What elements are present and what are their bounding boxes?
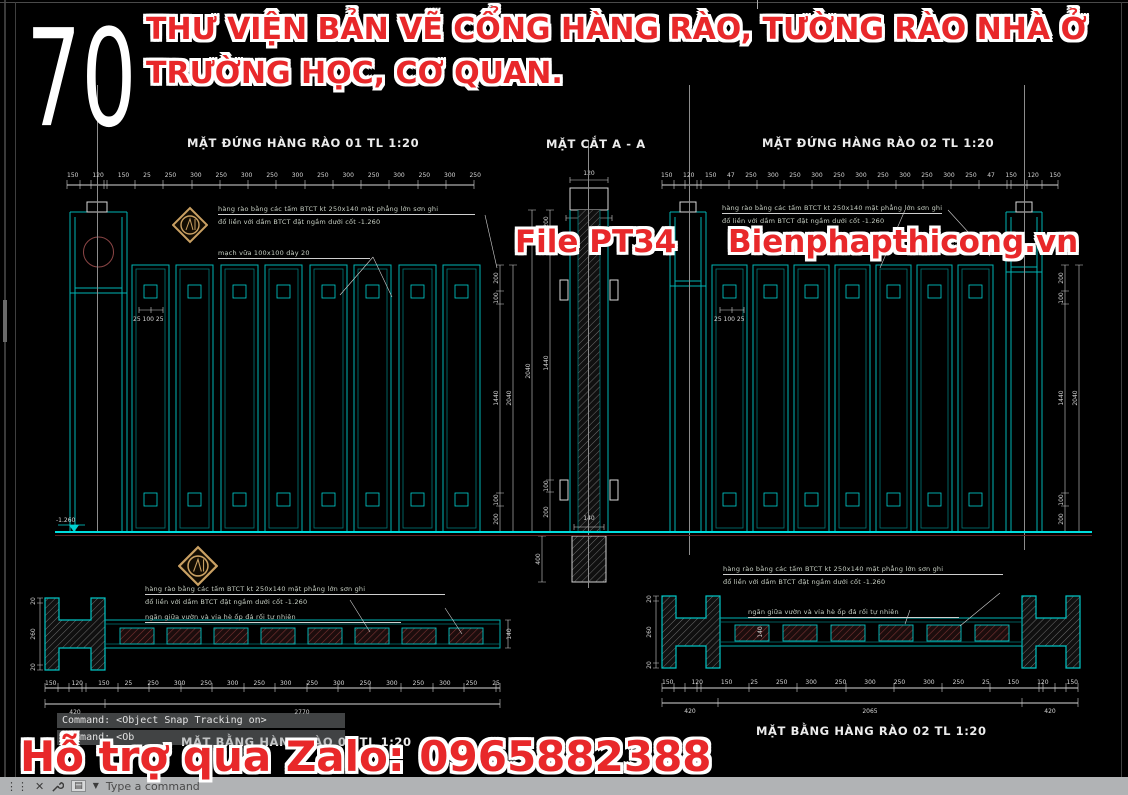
elevation-02-top-dims: 1501201504725030025030025030025030025030… [661, 172, 1061, 179]
drag-handle-icon[interactable]: ⋮⋮ [6, 781, 28, 792]
watermark-file-label: File PT34 [515, 224, 676, 260]
sheet-number: 70 [26, 12, 137, 146]
svg-text:200: 200 [543, 506, 550, 518]
construction-line [1024, 85, 1025, 550]
gate-post [70, 212, 127, 532]
elevation-01-top-dims: 1501201502525030025030025030025030025030… [67, 172, 481, 179]
customize-wrench-icon[interactable] [51, 780, 64, 793]
watermark-website: Bienphapthicong.vn [728, 224, 1078, 260]
plan-02-annotation-1: hàng rào bằng các tấm BTCT kt 250x140 mặ… [723, 565, 1003, 575]
command-input-placeholder[interactable]: Type a command [106, 780, 200, 793]
ground-line-shadow [55, 535, 1092, 536]
elevation-01-annotation-2: đổ liền với dầm BTCT đặt ngầm dưới cốt -… [218, 218, 380, 226]
plan-panels [120, 628, 483, 644]
svg-text:20: 20 [30, 597, 37, 605]
svg-text:200: 200 [1058, 272, 1065, 284]
h-column-left [662, 596, 720, 668]
svg-text:200: 200 [493, 272, 500, 284]
svg-text:1440: 1440 [493, 390, 500, 405]
frame-left [15, 2, 16, 778]
top-tick [757, 0, 758, 9]
fence-panels [132, 265, 480, 532]
svg-text:20: 20 [646, 661, 653, 669]
plan-02-bottom-dims: 1501201502525030025030025030025025150120… [662, 679, 1078, 686]
svg-text:200: 200 [1058, 513, 1065, 525]
plan-01-annotation-3: ngăn giữa vườn và vỉa hè ốp đá rối tự nh… [145, 613, 401, 623]
svg-text:20: 20 [30, 663, 37, 671]
svg-text:1440: 1440 [1058, 390, 1065, 405]
fence-panels [712, 265, 993, 532]
svg-text:100: 100 [1058, 292, 1065, 304]
fence-post-left [670, 212, 706, 532]
svg-text:2040: 2040 [1072, 390, 1079, 405]
svg-text:25 100 25: 25 100 25 [133, 316, 164, 323]
elevation-01-title: MẶT ĐỨNG HÀNG RÀO 01 TL 1:20 [187, 136, 419, 150]
construction-line [588, 140, 589, 588]
h-column-right [1022, 596, 1080, 668]
frame-top [0, 2, 1128, 3]
svg-text:140: 140 [506, 628, 513, 640]
svg-text:20: 20 [646, 595, 653, 603]
svg-text:140: 140 [583, 515, 595, 522]
watermark-zalo: Hỗ trợ qua Zalo: 0965882388 [20, 732, 712, 781]
elevation-01-annotation-3: mạch vữa 100x100 dày 20 [218, 249, 370, 259]
svg-text:420: 420 [1044, 708, 1056, 715]
chevron-down-icon[interactable]: ▼ [93, 782, 99, 790]
command-history-line-1: Command: <Object Snap Tracking on> [57, 713, 345, 728]
svg-text:200: 200 [493, 513, 500, 525]
elevation-01-annotation-1: hàng rào bằng các tấm BTCT kt 250x140 mặ… [218, 205, 475, 215]
svg-text:140: 140 [757, 626, 764, 638]
close-icon[interactable]: ✕ [35, 781, 44, 792]
autocad-canvas: 70 THƯ VIỆN BẢN VẼ CỔNG HÀNG RÀO, TƯỜNG … [0, 0, 1128, 795]
svg-text:260: 260 [646, 626, 653, 638]
svg-text:100: 100 [493, 292, 500, 304]
level-label: -1.260 [56, 517, 76, 524]
svg-text:120: 120 [583, 170, 595, 177]
sheet-title-line1: THƯ VIỆN BẢN VẼ CỔNG HÀNG RÀO, TƯỜNG RÀO… [146, 12, 1087, 47]
elevation-01-drawing: 200 100 1440 100 200 2040 25 100 25 -1.2… [55, 160, 515, 540]
scrollbar-thumb[interactable] [3, 300, 7, 342]
svg-text:100: 100 [543, 480, 550, 492]
svg-text:2040: 2040 [506, 390, 513, 405]
svg-text:260: 260 [30, 628, 37, 640]
cad-logo-icon [172, 206, 208, 244]
elevation-02-annotation-1: hàng rào bằng các tấm BTCT kt 250x140 mặ… [722, 204, 942, 214]
recent-commands-icon[interactable]: ▤ [71, 780, 86, 792]
plan-02-annotation-2: đổ liền với dầm BTCT đặt ngầm dưới cốt -… [723, 578, 885, 586]
h-column [45, 598, 105, 670]
svg-text:2065: 2065 [862, 708, 877, 715]
svg-text:100: 100 [493, 494, 500, 506]
svg-text:2040: 2040 [525, 363, 532, 378]
plan-02-annotation-3: ngăn giữa vườn và vỉa hè ốp đá rối tự nh… [748, 608, 959, 618]
svg-text:100: 100 [1058, 494, 1065, 506]
frame-right [1121, 2, 1122, 778]
section-a-a-drawing: 120 140 140 2040 200 100 1440 100 200 40… [520, 148, 670, 595]
plan-01-annotation-2: đổ liền với dầm BTCT đặt ngầm dưới cốt -… [145, 598, 307, 606]
plan-02-title: MẶT BẰNG HÀNG RÀO 02 TL 1:20 [756, 724, 987, 738]
svg-text:400: 400 [535, 553, 542, 565]
plan-01-drawing: 140 20 260 20 420 2770 [30, 588, 520, 728]
svg-text:1440: 1440 [543, 355, 550, 370]
ground-line [55, 531, 1092, 533]
section-title: MẶT CẮT A - A [546, 137, 646, 151]
plan-01-bottom-dims: 1501201502525030025030025030025030025030… [45, 680, 500, 687]
elevation-02-title: MẶT ĐỨNG HÀNG RÀO 02 TL 1:20 [762, 136, 994, 150]
svg-text:420: 420 [684, 708, 696, 715]
construction-line [689, 85, 690, 555]
plan-panels [735, 625, 1009, 641]
cad-logo-icon [178, 545, 218, 587]
svg-text:25 100 25: 25 100 25 [714, 316, 745, 323]
sheet-title-line2: TRƯỜNG HỌC, CƠ QUAN. [146, 56, 563, 91]
scrollbar-track[interactable] [4, 0, 6, 795]
